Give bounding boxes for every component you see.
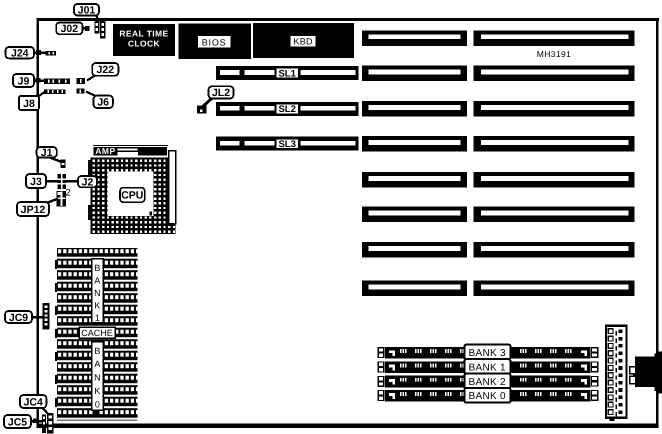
svg-text:MH3191: MH3191 bbox=[537, 49, 572, 59]
svg-text:2: 2 bbox=[500, 377, 506, 388]
svg-text:J02: J02 bbox=[61, 23, 79, 35]
svg-text:JC5: JC5 bbox=[8, 416, 27, 428]
svg-text:N: N bbox=[94, 288, 101, 298]
svg-text:0: 0 bbox=[95, 399, 100, 409]
svg-text:J24: J24 bbox=[11, 47, 29, 59]
svg-text:CACHE: CACHE bbox=[81, 328, 113, 338]
svg-text:AMP: AMP bbox=[95, 146, 115, 156]
svg-text:0: 0 bbox=[500, 391, 506, 402]
svg-text:BANK: BANK bbox=[469, 377, 497, 388]
svg-text:B: B bbox=[94, 263, 100, 273]
svg-text:KBD: KBD bbox=[293, 37, 313, 47]
svg-text:JC9: JC9 bbox=[9, 312, 28, 324]
svg-text:SL1: SL1 bbox=[278, 68, 296, 79]
svg-text:CPU: CPU bbox=[121, 190, 143, 202]
svg-text:BIOS: BIOS bbox=[202, 37, 227, 47]
svg-text:CLOCK: CLOCK bbox=[128, 39, 161, 49]
svg-text:1: 1 bbox=[500, 362, 506, 373]
svg-text:J22: J22 bbox=[97, 64, 115, 76]
svg-text:BANK: BANK bbox=[469, 362, 497, 373]
svg-text:REAL TIME: REAL TIME bbox=[119, 29, 168, 39]
svg-text:JC4: JC4 bbox=[24, 396, 43, 408]
svg-text:J9: J9 bbox=[18, 75, 30, 87]
svg-text:K: K bbox=[94, 386, 100, 396]
svg-text:3: 3 bbox=[500, 348, 506, 359]
svg-text:A: A bbox=[94, 275, 100, 285]
svg-text:J2: J2 bbox=[82, 176, 94, 188]
svg-text:A: A bbox=[94, 359, 100, 369]
svg-text:JL2: JL2 bbox=[212, 87, 230, 99]
svg-text:SL3: SL3 bbox=[278, 139, 295, 150]
svg-text:J8: J8 bbox=[23, 98, 35, 110]
svg-text:JP12: JP12 bbox=[21, 204, 46, 216]
svg-text:2: 2 bbox=[66, 187, 71, 198]
svg-text:1: 1 bbox=[95, 313, 100, 323]
svg-text:K: K bbox=[94, 301, 100, 311]
svg-text:J1: J1 bbox=[41, 147, 53, 159]
svg-text:BANK: BANK bbox=[469, 391, 497, 402]
svg-text:N: N bbox=[94, 373, 101, 383]
svg-text:J3: J3 bbox=[30, 176, 42, 188]
svg-text:BANK: BANK bbox=[469, 348, 497, 359]
svg-text:J6: J6 bbox=[97, 97, 109, 109]
svg-text:J01: J01 bbox=[78, 5, 96, 17]
svg-text:SL2: SL2 bbox=[278, 104, 295, 115]
svg-text:B: B bbox=[94, 346, 100, 356]
